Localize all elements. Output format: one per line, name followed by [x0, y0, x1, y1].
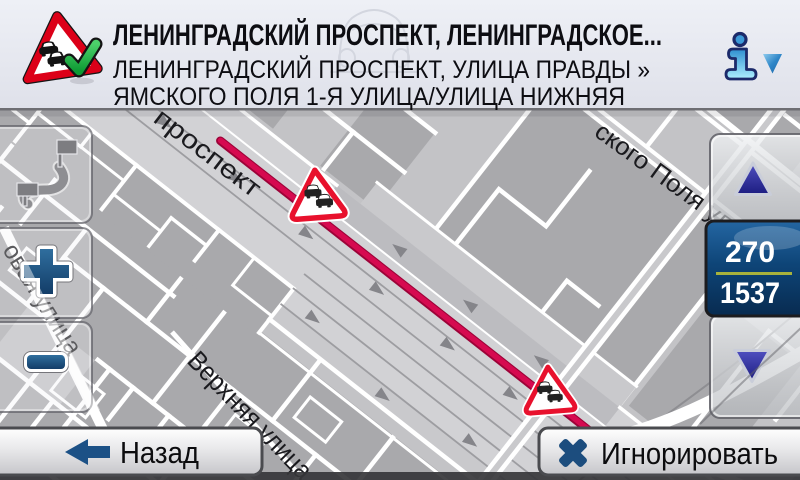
svg-text:Назад: Назад	[120, 435, 199, 470]
svg-text:ЯМСКОГО ПОЛЯ 1-Я УЛИЦА/УЛИЦА Н: ЯМСКОГО ПОЛЯ 1-Я УЛИЦА/УЛИЦА НИЖНЯЯ	[113, 83, 625, 111]
svg-text:270: 270	[725, 236, 775, 269]
svg-text:Игнорировать: Игнорировать	[601, 436, 778, 471]
svg-text:ЛЕНИНГРАДСКИЙ ПРОСПЕКТ, УЛИЦА: ЛЕНИНГРАДСКИЙ ПРОСПЕКТ, УЛИЦА ПРАВДЫ »	[113, 54, 650, 84]
svg-text:ЛЕНИНГРАДСКИЙ ПРОСПЕКТ, ЛЕНИНГ: ЛЕНИНГРАДСКИЙ ПРОСПЕКТ, ЛЕНИНГРАДСКОЕ...	[113, 18, 662, 52]
svg-text:1537: 1537	[720, 277, 780, 310]
